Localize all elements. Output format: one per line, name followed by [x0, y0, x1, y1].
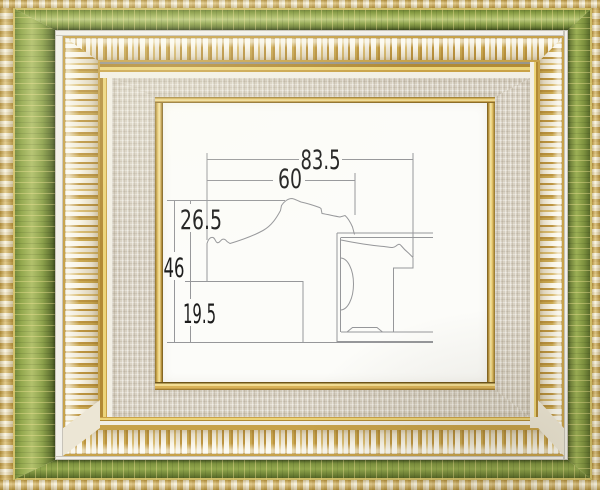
frame-linen-liner-left: [112, 78, 155, 417]
frame-outer-beaded-edge-top: [0, 0, 600, 8]
frame-gold-fillet-right: [487, 97, 495, 382]
frame-white-step-top: [55, 30, 564, 36]
frame-green-band-top: [13, 8, 592, 30]
moulding-profile-outline: [207, 199, 355, 343]
label-overall-height: 46: [164, 253, 185, 284]
framed-moulding-diagram-photo: 83.5 60 26.5 46 19.5: [0, 0, 600, 490]
frame-outer-beaded-edge-right: [592, 0, 600, 490]
frame-gold-step-right: [530, 62, 538, 417]
moulding-cross-section-diagram: 83.5 60 26.5 46 19.5: [163, 103, 487, 382]
end-view-top-edges: [337, 233, 433, 238]
label-upper-height: 26.5: [180, 205, 222, 236]
label-overall-width: 83.5: [301, 145, 341, 176]
frame-ornament-band-left: [63, 36, 100, 428]
frame-linen-liner-right: [495, 78, 530, 417]
frame-green-band-left: [13, 8, 55, 480]
frame-ornament-band-bottom: [63, 428, 564, 456]
frame-white-step-right: [564, 30, 568, 460]
frame-green-band-bottom: [13, 460, 592, 480]
frame-outer-beaded-edge-left: [0, 0, 13, 490]
frame-linen-liner-top: [112, 78, 530, 97]
frame-gold-step-left: [100, 62, 112, 417]
end-view-rabbet-step: [394, 258, 414, 333]
end-view-left-edges: [337, 233, 341, 342]
label-lower-height: 19.5: [183, 299, 216, 330]
frame-white-step-bottom: [55, 456, 564, 460]
frame-gold-step-top: [100, 62, 530, 78]
end-view-arc: [341, 258, 354, 310]
frame-gold-step-bottom: [100, 417, 530, 428]
frame-white-step-left: [55, 30, 63, 460]
frame-gold-fillet-bottom: [155, 382, 495, 390]
frame-gold-fillet-left: [155, 97, 163, 382]
frame-ornament-band-top: [63, 36, 564, 62]
end-view-bottom-edges: [337, 332, 433, 342]
frame-ornament-band-right: [538, 36, 564, 428]
frame-outer-beaded-edge-bottom: [0, 480, 600, 490]
end-view-face-slope: [341, 240, 413, 258]
frame-green-band-right: [568, 8, 592, 480]
frame-linen-liner-bottom: [112, 390, 530, 417]
end-view-foot-pad: [347, 328, 383, 333]
moulding-end-view: [337, 233, 433, 342]
label-face-width: 60: [278, 164, 302, 195]
